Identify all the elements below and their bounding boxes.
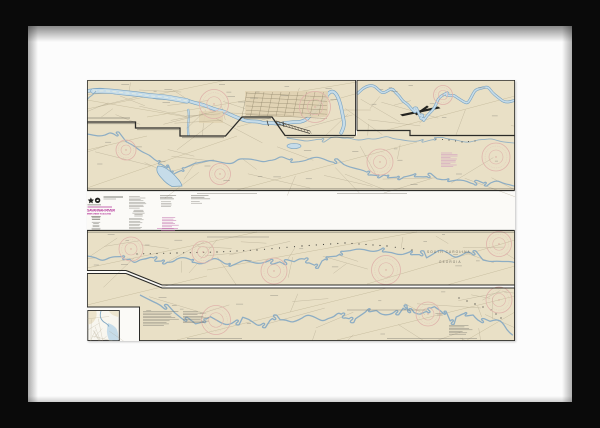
svg-text:BRIER CREEK TO AUGUSTA: BRIER CREEK TO AUGUSTA <box>87 212 112 215</box>
svg-text:SOUTH CAROLINA: SOUTH CAROLINA <box>427 250 471 254</box>
svg-text:GEORGIA: GEORGIA <box>439 260 462 264</box>
svg-text:SAVANNAH RIVER: SAVANNAH RIVER <box>87 209 115 213</box>
